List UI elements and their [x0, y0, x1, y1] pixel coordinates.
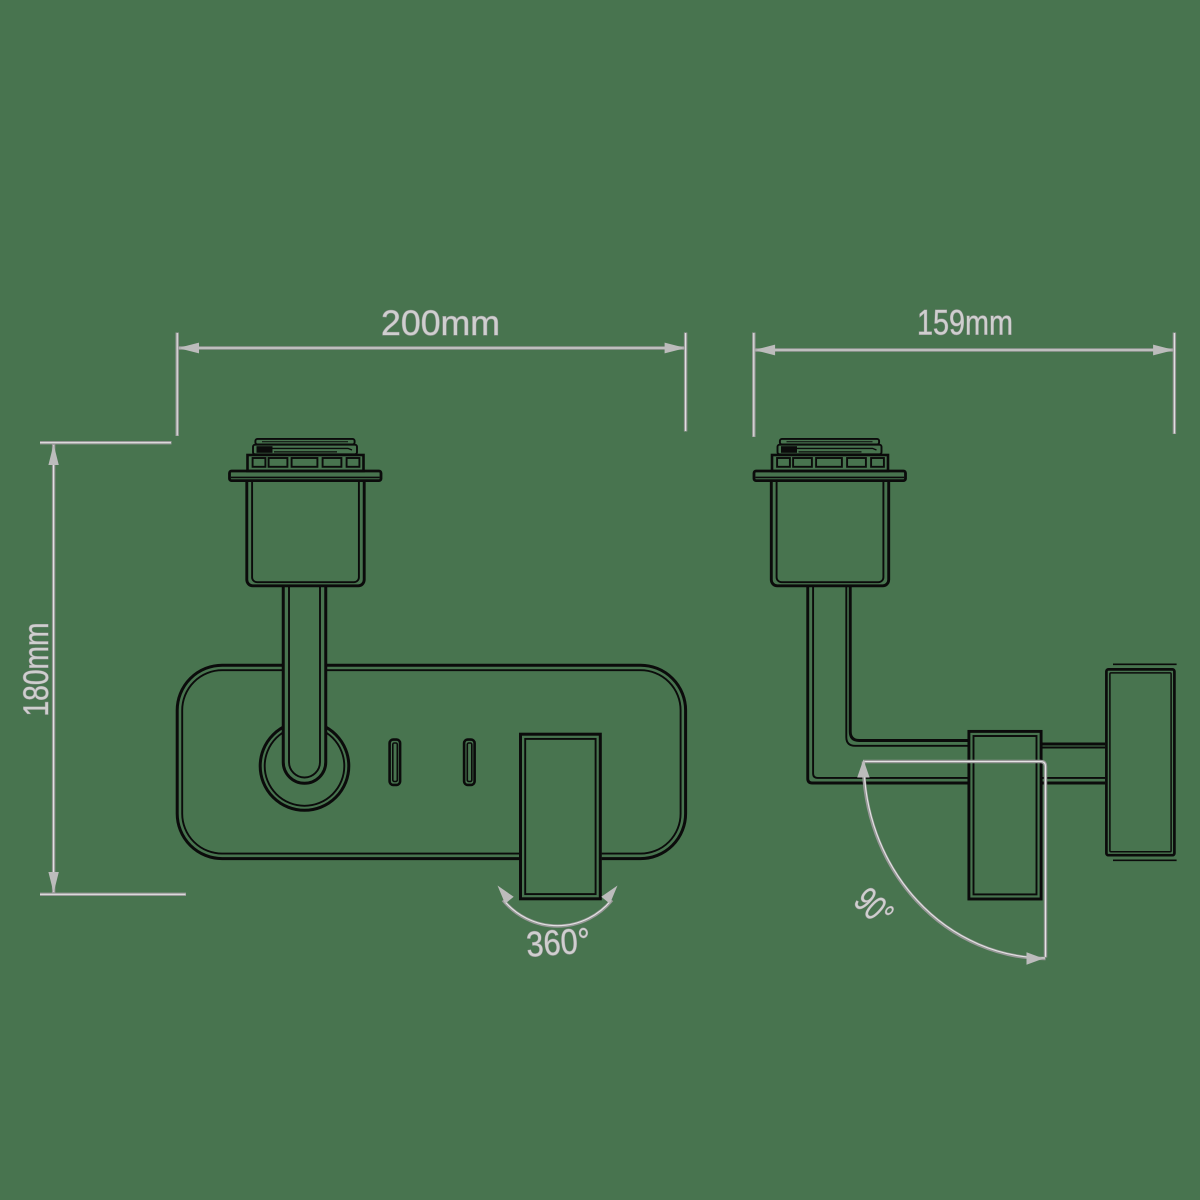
- svg-text:180mm: 180mm: [16, 623, 56, 717]
- svg-text:200mm: 200mm: [381, 303, 500, 343]
- svg-text:90°: 90°: [847, 880, 901, 934]
- svg-text:360°: 360°: [525, 920, 592, 964]
- svg-text:159mm: 159mm: [917, 303, 1013, 343]
